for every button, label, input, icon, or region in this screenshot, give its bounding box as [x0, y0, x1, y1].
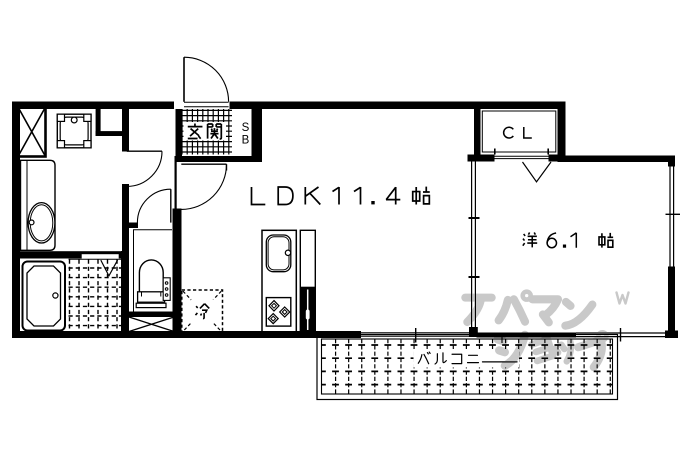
svg-text:S: S — [242, 122, 250, 134]
svg-text:B: B — [242, 135, 250, 147]
